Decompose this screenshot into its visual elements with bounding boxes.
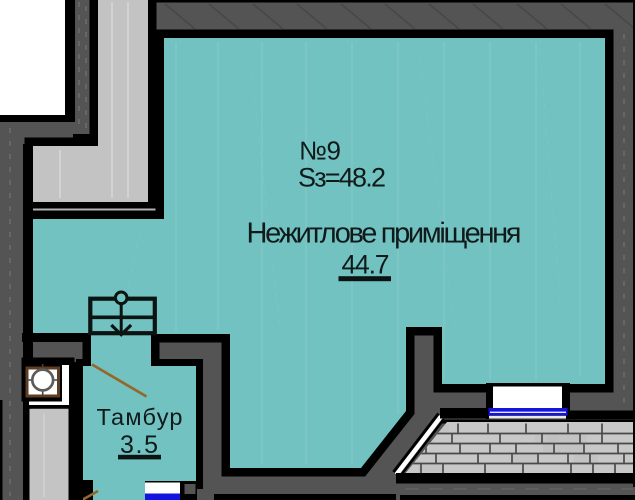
svg-text:44.7: 44.7 (342, 250, 390, 280)
svg-text:№9: №9 (299, 136, 341, 166)
svg-text:Нежитлове приміщення: Нежитлове приміщення (247, 218, 522, 250)
svg-text:Тамбур: Тамбур (97, 404, 183, 430)
svg-text:Sз=48.2: Sз=48.2 (298, 163, 386, 193)
